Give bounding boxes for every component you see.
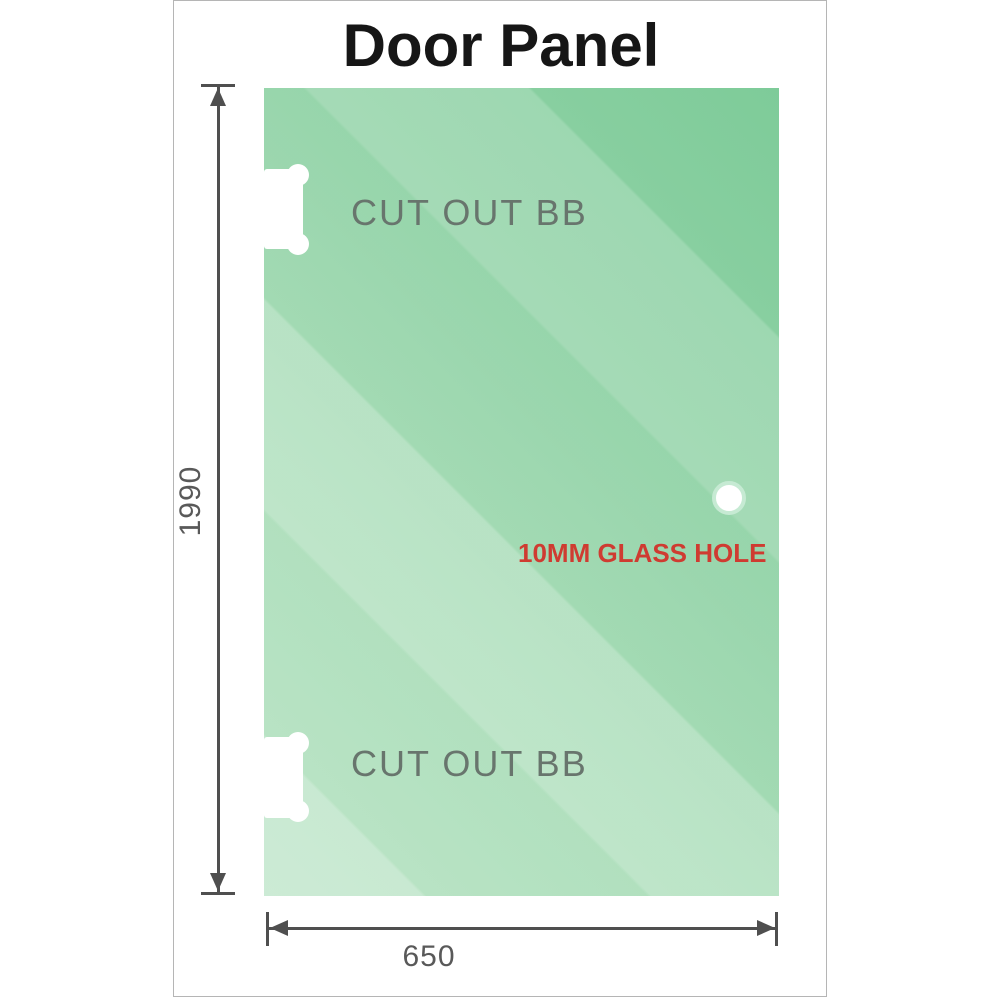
width-dimension-tick-left — [266, 912, 269, 946]
glass-hole — [712, 481, 746, 515]
cutout-bottom-label: CUT OUT BB — [351, 743, 588, 785]
width-dimension-value: 650 — [349, 942, 509, 972]
cutout-lobe-icon — [287, 233, 309, 255]
product-diagram-image: Door Panel CUT OUT BB CUT OUT BB 10MM GL… — [0, 0, 1000, 1000]
page-title: Door Panel — [174, 11, 828, 80]
height-dimension-cap-bottom — [201, 892, 235, 895]
cutout-top-label: CUT OUT BB — [351, 192, 588, 234]
width-dimension-line — [268, 927, 776, 930]
arrowhead-down-icon — [210, 873, 226, 891]
glass-hole-label: 10MM GLASS HOLE — [518, 538, 766, 569]
arrowhead-right-icon — [757, 920, 775, 936]
cutout-lobe-icon — [287, 800, 309, 822]
height-dimension-value: 1990 — [176, 461, 206, 541]
arrowhead-left-icon — [270, 920, 288, 936]
height-dimension-cap-top — [201, 84, 235, 87]
diagram-frame: Door Panel CUT OUT BB CUT OUT BB 10MM GL… — [173, 0, 827, 997]
cutout-lobe-icon — [287, 164, 309, 186]
cutout-lobe-icon — [287, 732, 309, 754]
width-dimension-tick-right — [775, 912, 778, 946]
arrowhead-up-icon — [210, 88, 226, 106]
height-dimension-line — [217, 87, 220, 893]
